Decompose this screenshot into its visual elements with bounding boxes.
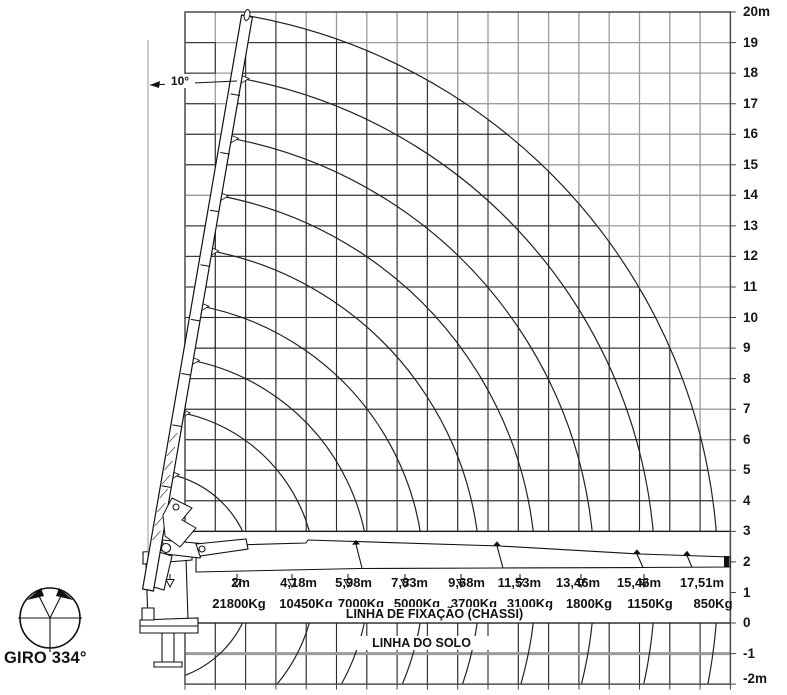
down-marker-icon [576,574,586,588]
axis-label-7: 7 [743,401,785,417]
down-marker-icon [165,574,175,588]
axis-label-17: 17 [743,96,785,112]
axis-label-neg1: -1 [743,646,785,662]
chassis-line-label: LINHA DE FIXAÇÃO (CHASSI) [320,607,549,621]
axis-label-2: 2 [743,554,785,570]
axis-label-10: 10 [743,310,785,326]
slew-range-label: GIRO 334° [4,649,124,668]
axis-label-20m: 20m [743,4,785,20]
crane-load-diagram: 20m 19 18 17 16 15 14 13 12 11 10 9 8 7 … [0,0,787,695]
axis-label-14: 14 [743,187,785,203]
down-marker-icon [639,574,649,588]
axis-label-19: 19 [743,35,785,51]
down-marker-icon [287,574,297,588]
axis-label-16: 16 [743,126,785,142]
down-marker-icon [515,574,525,588]
axis-label-13: 13 [743,218,785,234]
axis-label-4: 4 [743,493,785,509]
axis-label-0: 0 [743,615,785,631]
down-marker-icon [456,574,466,588]
axis-label-5: 5 [743,462,785,478]
axis-label-11: 11 [743,279,785,295]
axis-label-12: 12 [743,248,785,264]
axis-ticks-right [730,12,736,684]
raised-boom [143,9,253,591]
axis-label-6: 6 [743,432,785,448]
down-marker-icon [232,574,242,588]
capacity-label: 850Kg [667,596,759,611]
ground-line-label: LINHA DO SOLO [352,636,491,650]
radius-label: 17,51m [638,574,724,591]
down-marker-icon [343,574,353,588]
slew-range-icon [18,588,82,652]
axis-label-8: 8 [743,371,785,387]
boom-angle-label: 10° [165,74,195,88]
axis-label-15: 15 [743,157,785,173]
axis-ticks-bottom [185,684,730,690]
angle-arrowhead [150,81,160,88]
axis-label-9: 9 [743,340,785,356]
down-marker-icon [400,574,410,588]
axis-label-3: 3 [743,523,785,539]
axis-label-neg2m: -2m [743,671,785,687]
axis-label-18: 18 [743,65,785,81]
